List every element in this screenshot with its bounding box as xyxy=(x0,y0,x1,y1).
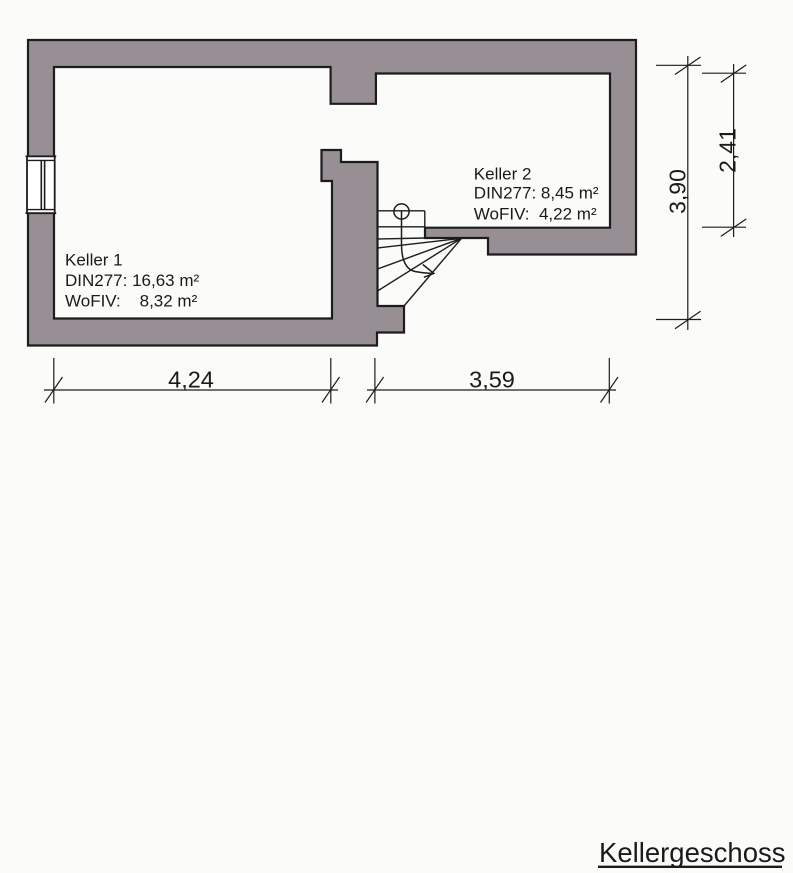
svg-text:3,90: 3,90 xyxy=(665,169,691,214)
svg-text:DIN277: 16,63 m²: DIN277: 16,63 m² xyxy=(65,271,200,290)
svg-text:Keller 2: Keller 2 xyxy=(474,165,532,184)
svg-text:3,59: 3,59 xyxy=(469,366,515,392)
svg-text:2,41: 2,41 xyxy=(714,128,740,173)
svg-text:WoFIV: 4,22 m²: WoFIV: 4,22 m² xyxy=(474,205,597,224)
svg-text:DIN277: 8,45 m²: DIN277: 8,45 m² xyxy=(474,184,599,203)
svg-text:Kellergeschoss: Kellergeschoss xyxy=(599,837,785,868)
svg-text:4,24: 4,24 xyxy=(168,366,214,392)
svg-text:WoFIV: 8,32 m²: WoFIV: 8,32 m² xyxy=(65,292,198,311)
svg-text:Keller 1: Keller 1 xyxy=(65,251,123,270)
